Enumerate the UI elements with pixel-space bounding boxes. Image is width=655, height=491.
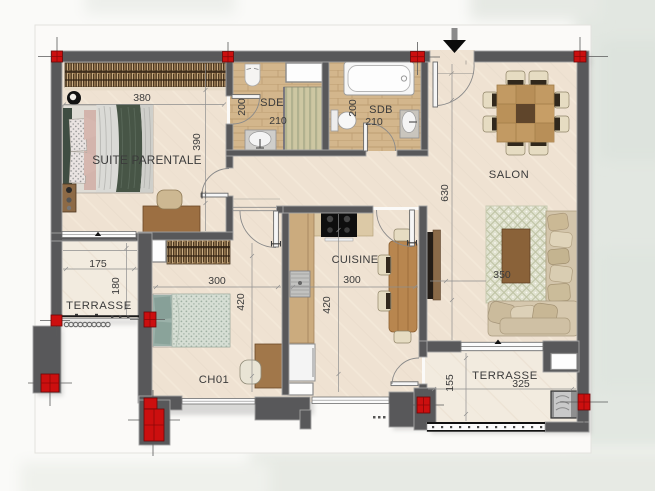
svg-text:420: 420 [321, 296, 333, 314]
svg-text:380: 380 [133, 92, 151, 104]
svg-text:155: 155 [444, 374, 456, 392]
svg-text:200: 200 [236, 98, 248, 116]
svg-text:630: 630 [439, 184, 451, 202]
svg-text:SUITE PARENTALE: SUITE PARENTALE [92, 153, 201, 167]
svg-text:300: 300 [343, 274, 361, 286]
svg-text:175: 175 [89, 258, 107, 270]
svg-text:TERRASSE: TERRASSE [66, 300, 132, 312]
svg-text:210: 210 [365, 116, 383, 128]
svg-text:200: 200 [347, 99, 359, 117]
svg-text:SDB: SDB [369, 104, 393, 116]
svg-text:SALON: SALON [489, 169, 529, 181]
svg-text:390: 390 [191, 133, 203, 151]
svg-text:SDE: SDE [260, 97, 284, 109]
svg-text:TERRASSE: TERRASSE [472, 370, 538, 382]
svg-text:210: 210 [269, 115, 287, 127]
svg-text:420: 420 [235, 293, 247, 311]
svg-text:300: 300 [208, 275, 226, 287]
svg-text:CUISINE: CUISINE [332, 254, 379, 266]
svg-text:CH01: CH01 [199, 374, 229, 386]
svg-text:350: 350 [493, 269, 511, 281]
svg-text:180: 180 [110, 277, 122, 295]
